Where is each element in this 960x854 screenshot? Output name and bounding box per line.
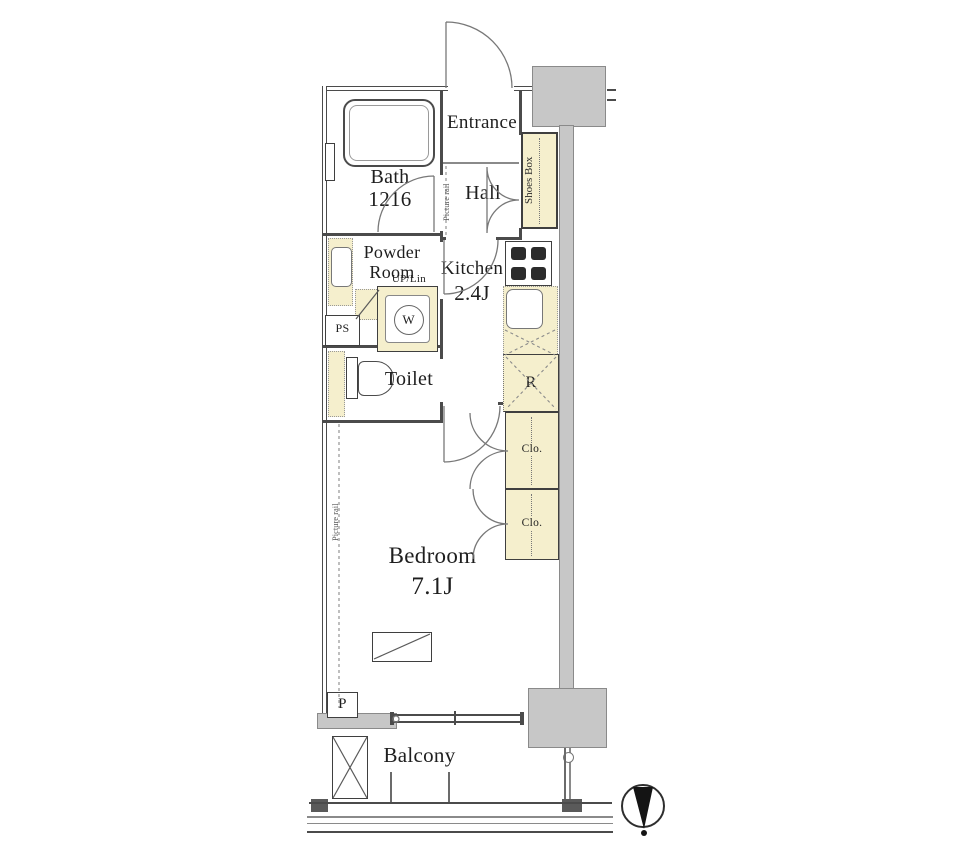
railing-cap-left: [311, 799, 328, 812]
balcony-partition: [332, 736, 368, 799]
wall-toilet-bedroom: [322, 420, 443, 423]
kitchen-size: 2.4J: [430, 282, 514, 306]
picture-rail-hall-label: Picture rail: [441, 168, 453, 236]
pole-label: P: [328, 696, 357, 713]
bedroom-door-arc: [444, 406, 500, 462]
closet-upper-door-arcs: [470, 413, 508, 489]
railing-cap-right: [562, 799, 582, 812]
washer-box: W: [377, 286, 438, 352]
closet-lower-label: Clo.: [506, 517, 558, 530]
window-mid-tick: [454, 711, 456, 725]
kitchen-label: Kitchen 2.4J: [430, 258, 514, 306]
closet-upper: Clo.: [505, 412, 559, 489]
balcony-post-3: [564, 748, 566, 803]
shoes-box: Shoes Box: [521, 132, 558, 229]
window-cap-left: [390, 712, 394, 725]
refrigerator-space: R: [503, 354, 559, 412]
bedroom-label: Bedroom 7.1J: [375, 543, 490, 601]
shoes-box-label: Shoes Box: [523, 134, 556, 227]
bathtub-icon: [343, 99, 435, 167]
railing-line-3: [307, 823, 613, 824]
toilet-label: Toilet: [376, 368, 442, 390]
desk: [372, 632, 432, 662]
floorplan-canvas: Shoes Box PS UP/Lin W R Clo. Clo.: [0, 0, 960, 854]
closet-upper-label: Clo.: [506, 443, 558, 456]
toilet-tank: [346, 357, 358, 399]
north-arrow-icon: [622, 785, 664, 836]
washer-label: W: [402, 312, 414, 327]
column-bottom: [528, 688, 607, 748]
pole-box: P: [327, 692, 358, 718]
bath-label: Bath 1216: [348, 166, 432, 212]
entrance-door-arc: [446, 22, 512, 88]
entrance-label: Entrance: [437, 112, 527, 133]
railing-line-4: [307, 831, 613, 833]
hall-label: Hall: [452, 182, 514, 204]
picture-rail-bedroom-label: Picture rail: [330, 482, 342, 562]
balcony-window: [392, 714, 522, 723]
balcony-post-1: [390, 772, 392, 803]
wall-entrance-right-b: [519, 228, 522, 240]
toilet-cabinet: [328, 351, 345, 417]
window-cap-right: [520, 712, 524, 725]
balcony-post-2: [448, 772, 450, 803]
closet-lower: Clo.: [505, 489, 559, 560]
wall-bath-powder: [322, 233, 443, 236]
refrigerator-label: R: [504, 374, 558, 392]
pipe-space-label: PS: [326, 322, 359, 335]
washer-icon: W: [394, 305, 424, 335]
balcony-label: Balcony: [372, 744, 467, 768]
wall-tick-1: [607, 89, 616, 91]
bedroom-size: 7.1J: [375, 573, 490, 601]
wall-top-left: [322, 86, 448, 91]
entrance-step-line: [443, 162, 519, 164]
pipe-space-box: PS: [325, 315, 360, 346]
wall-tick-2: [607, 99, 616, 101]
wall-right-band: [559, 125, 574, 691]
bath-niche: [325, 143, 335, 181]
wall-corridor-d: [440, 402, 443, 422]
wall-corridor-c: [440, 299, 443, 359]
bath-size: 1216: [348, 188, 432, 212]
railing-line-2: [307, 816, 613, 818]
wall-hall-kitchen-a: [440, 237, 446, 240]
railing-line-1: [309, 802, 612, 804]
powder-room-label: Powder Room: [348, 242, 436, 282]
column-top: [532, 66, 606, 127]
